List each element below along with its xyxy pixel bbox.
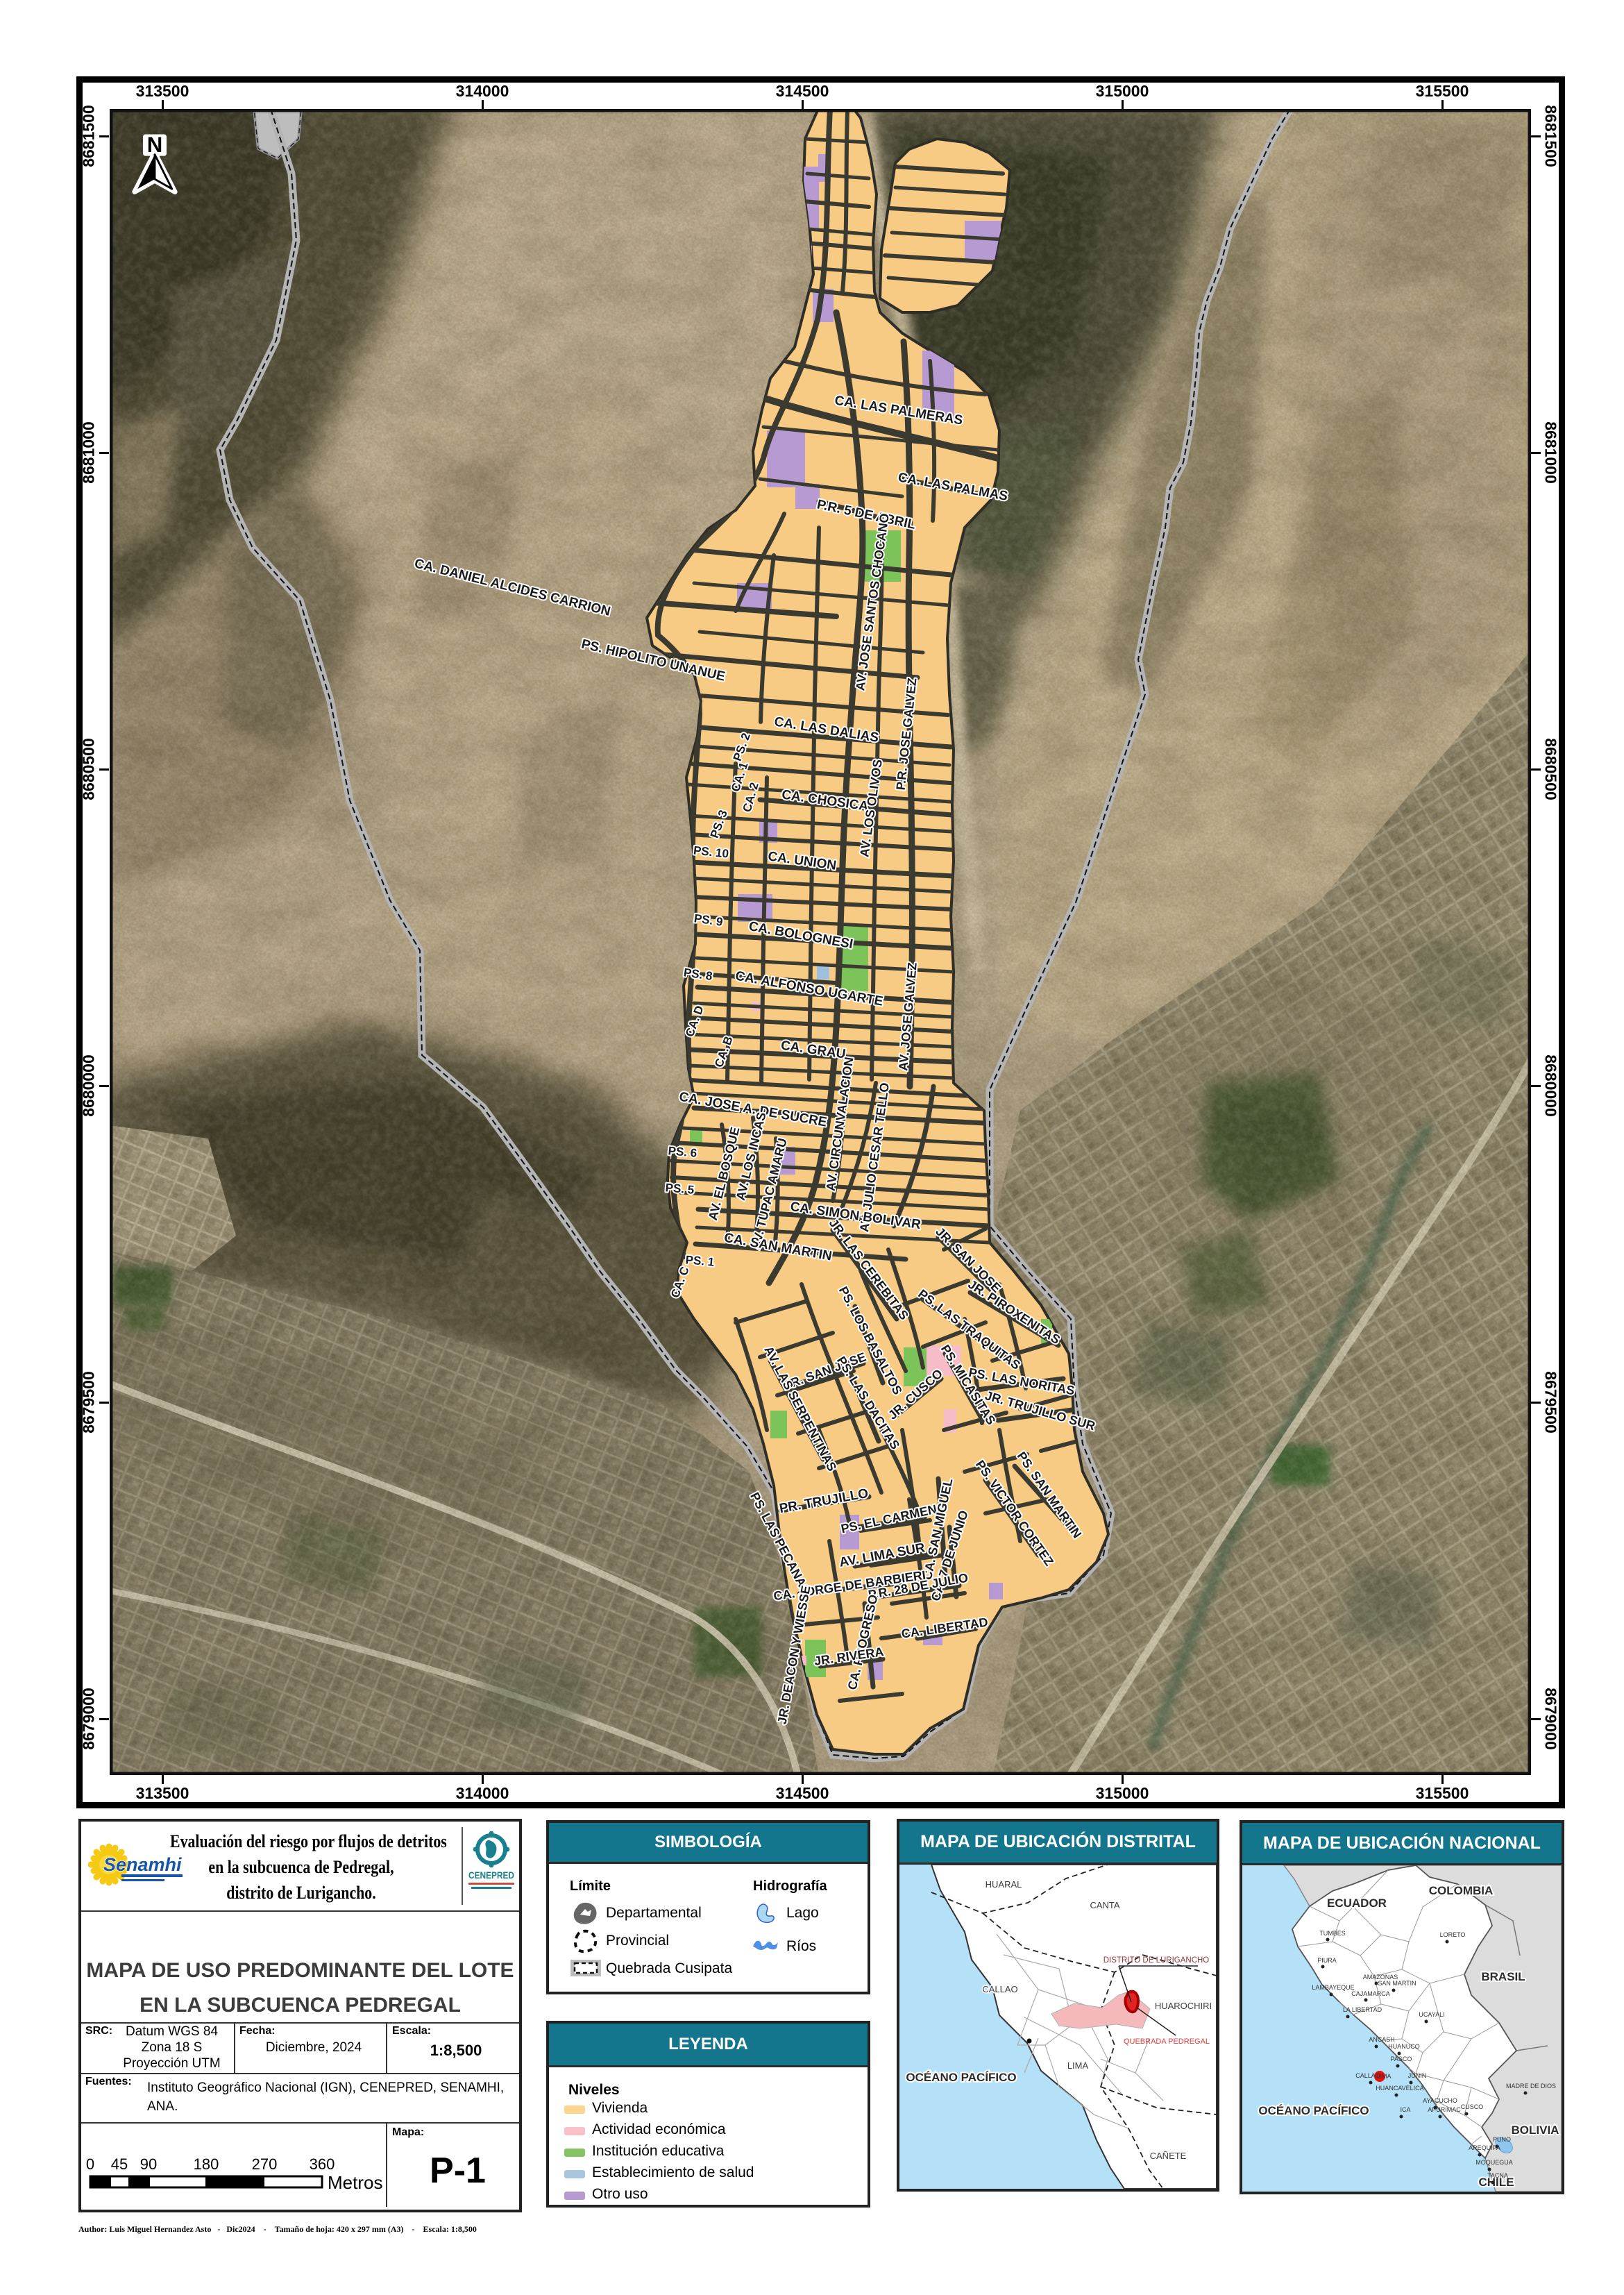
svg-text:UCAYALI: UCAYALI	[1419, 2011, 1444, 2018]
svg-text:CUSCO: CUSCO	[1461, 2103, 1484, 2110]
svg-text:HUAROCHIRI: HUAROCHIRI	[1155, 2001, 1212, 2011]
svg-text:ECUADOR: ECUADOR	[1327, 1897, 1387, 1910]
svg-text:360: 360	[310, 2155, 335, 2173]
svg-text:PS. 5: PS. 5	[665, 1181, 695, 1197]
svg-text:OCÉANO PACÍFICO: OCÉANO PACÍFICO	[906, 2071, 1016, 2084]
svg-text:LAMBAYEQUE: LAMBAYEQUE	[1312, 1984, 1354, 1991]
svg-text:APURIMAC: APURIMAC	[1428, 2106, 1461, 2113]
svg-text:270: 270	[252, 2155, 278, 2173]
svg-text:COLOMBIA: COLOMBIA	[1429, 1884, 1494, 1897]
svg-text:CAJAMARCA: CAJAMARCA	[1351, 1990, 1390, 1997]
svg-text:AYACUCHO: AYACUCHO	[1423, 2097, 1457, 2104]
svg-text:0: 0	[86, 2155, 94, 2173]
svg-text:CAÑETE: CAÑETE	[1150, 2151, 1187, 2161]
svg-text:CENEPRED: CENEPRED	[468, 1869, 514, 1881]
svg-text:TUMBES: TUMBES	[1319, 1930, 1346, 1937]
svg-text:45: 45	[111, 2155, 128, 2173]
svg-text:PIURA: PIURA	[1317, 1957, 1337, 1964]
svg-text:SAN MARTIN: SAN MARTIN	[1378, 1980, 1416, 1987]
svg-text:BRASIL: BRASIL	[1481, 1970, 1525, 1983]
svg-text:PASCO: PASCO	[1391, 2056, 1412, 2062]
svg-text:Metros: Metros	[328, 2172, 382, 2193]
svg-text:PS. 6: PS. 6	[668, 1144, 697, 1160]
svg-text:HUARAL: HUARAL	[986, 1879, 1022, 1890]
svg-text:TACNA: TACNA	[1487, 2172, 1508, 2179]
svg-text:LA LIBERTAD: LA LIBERTAD	[1343, 2006, 1382, 2013]
svg-text:HUANCAVELICA: HUANCAVELICA	[1376, 2085, 1423, 2092]
svg-text:180: 180	[194, 2155, 219, 2173]
svg-text:N: N	[147, 133, 163, 157]
svg-text:LORETO: LORETO	[1440, 1931, 1466, 1938]
svg-text:HUANUCO: HUANUCO	[1388, 2043, 1420, 2050]
svg-text:JUNIN: JUNIN	[1408, 2072, 1427, 2079]
svg-text:BOLIVIA: BOLIVIA	[1512, 2124, 1559, 2137]
svg-text:DISTRITO DE LURIGANCHO: DISTRITO DE LURIGANCHO	[1103, 1956, 1210, 1965]
svg-text:ANCASH: ANCASH	[1369, 2036, 1395, 2043]
svg-text:LIMA: LIMA	[1067, 2060, 1089, 2071]
svg-text:OCÉANO PACÍFICO: OCÉANO PACÍFICO	[1258, 2104, 1369, 2117]
svg-text:PS. 1: PS. 1	[685, 1253, 715, 1269]
svg-text:LIMA: LIMA	[1376, 2073, 1391, 2080]
svg-text:MADRE DE DIOS: MADRE DE DIOS	[1506, 2083, 1556, 2090]
svg-text:QUEBRADA PEDREGAL: QUEBRADA PEDREGAL	[1124, 2037, 1210, 2046]
svg-text:ICA: ICA	[1400, 2106, 1410, 2113]
svg-text:CALLAO: CALLAO	[982, 1984, 1017, 1994]
svg-text:PUNO: PUNO	[1493, 2136, 1511, 2143]
svg-text:90: 90	[140, 2155, 157, 2173]
svg-text:MOQUEGUA: MOQUEGUA	[1475, 2159, 1513, 2166]
svg-text:CANTA: CANTA	[1090, 1900, 1119, 1910]
